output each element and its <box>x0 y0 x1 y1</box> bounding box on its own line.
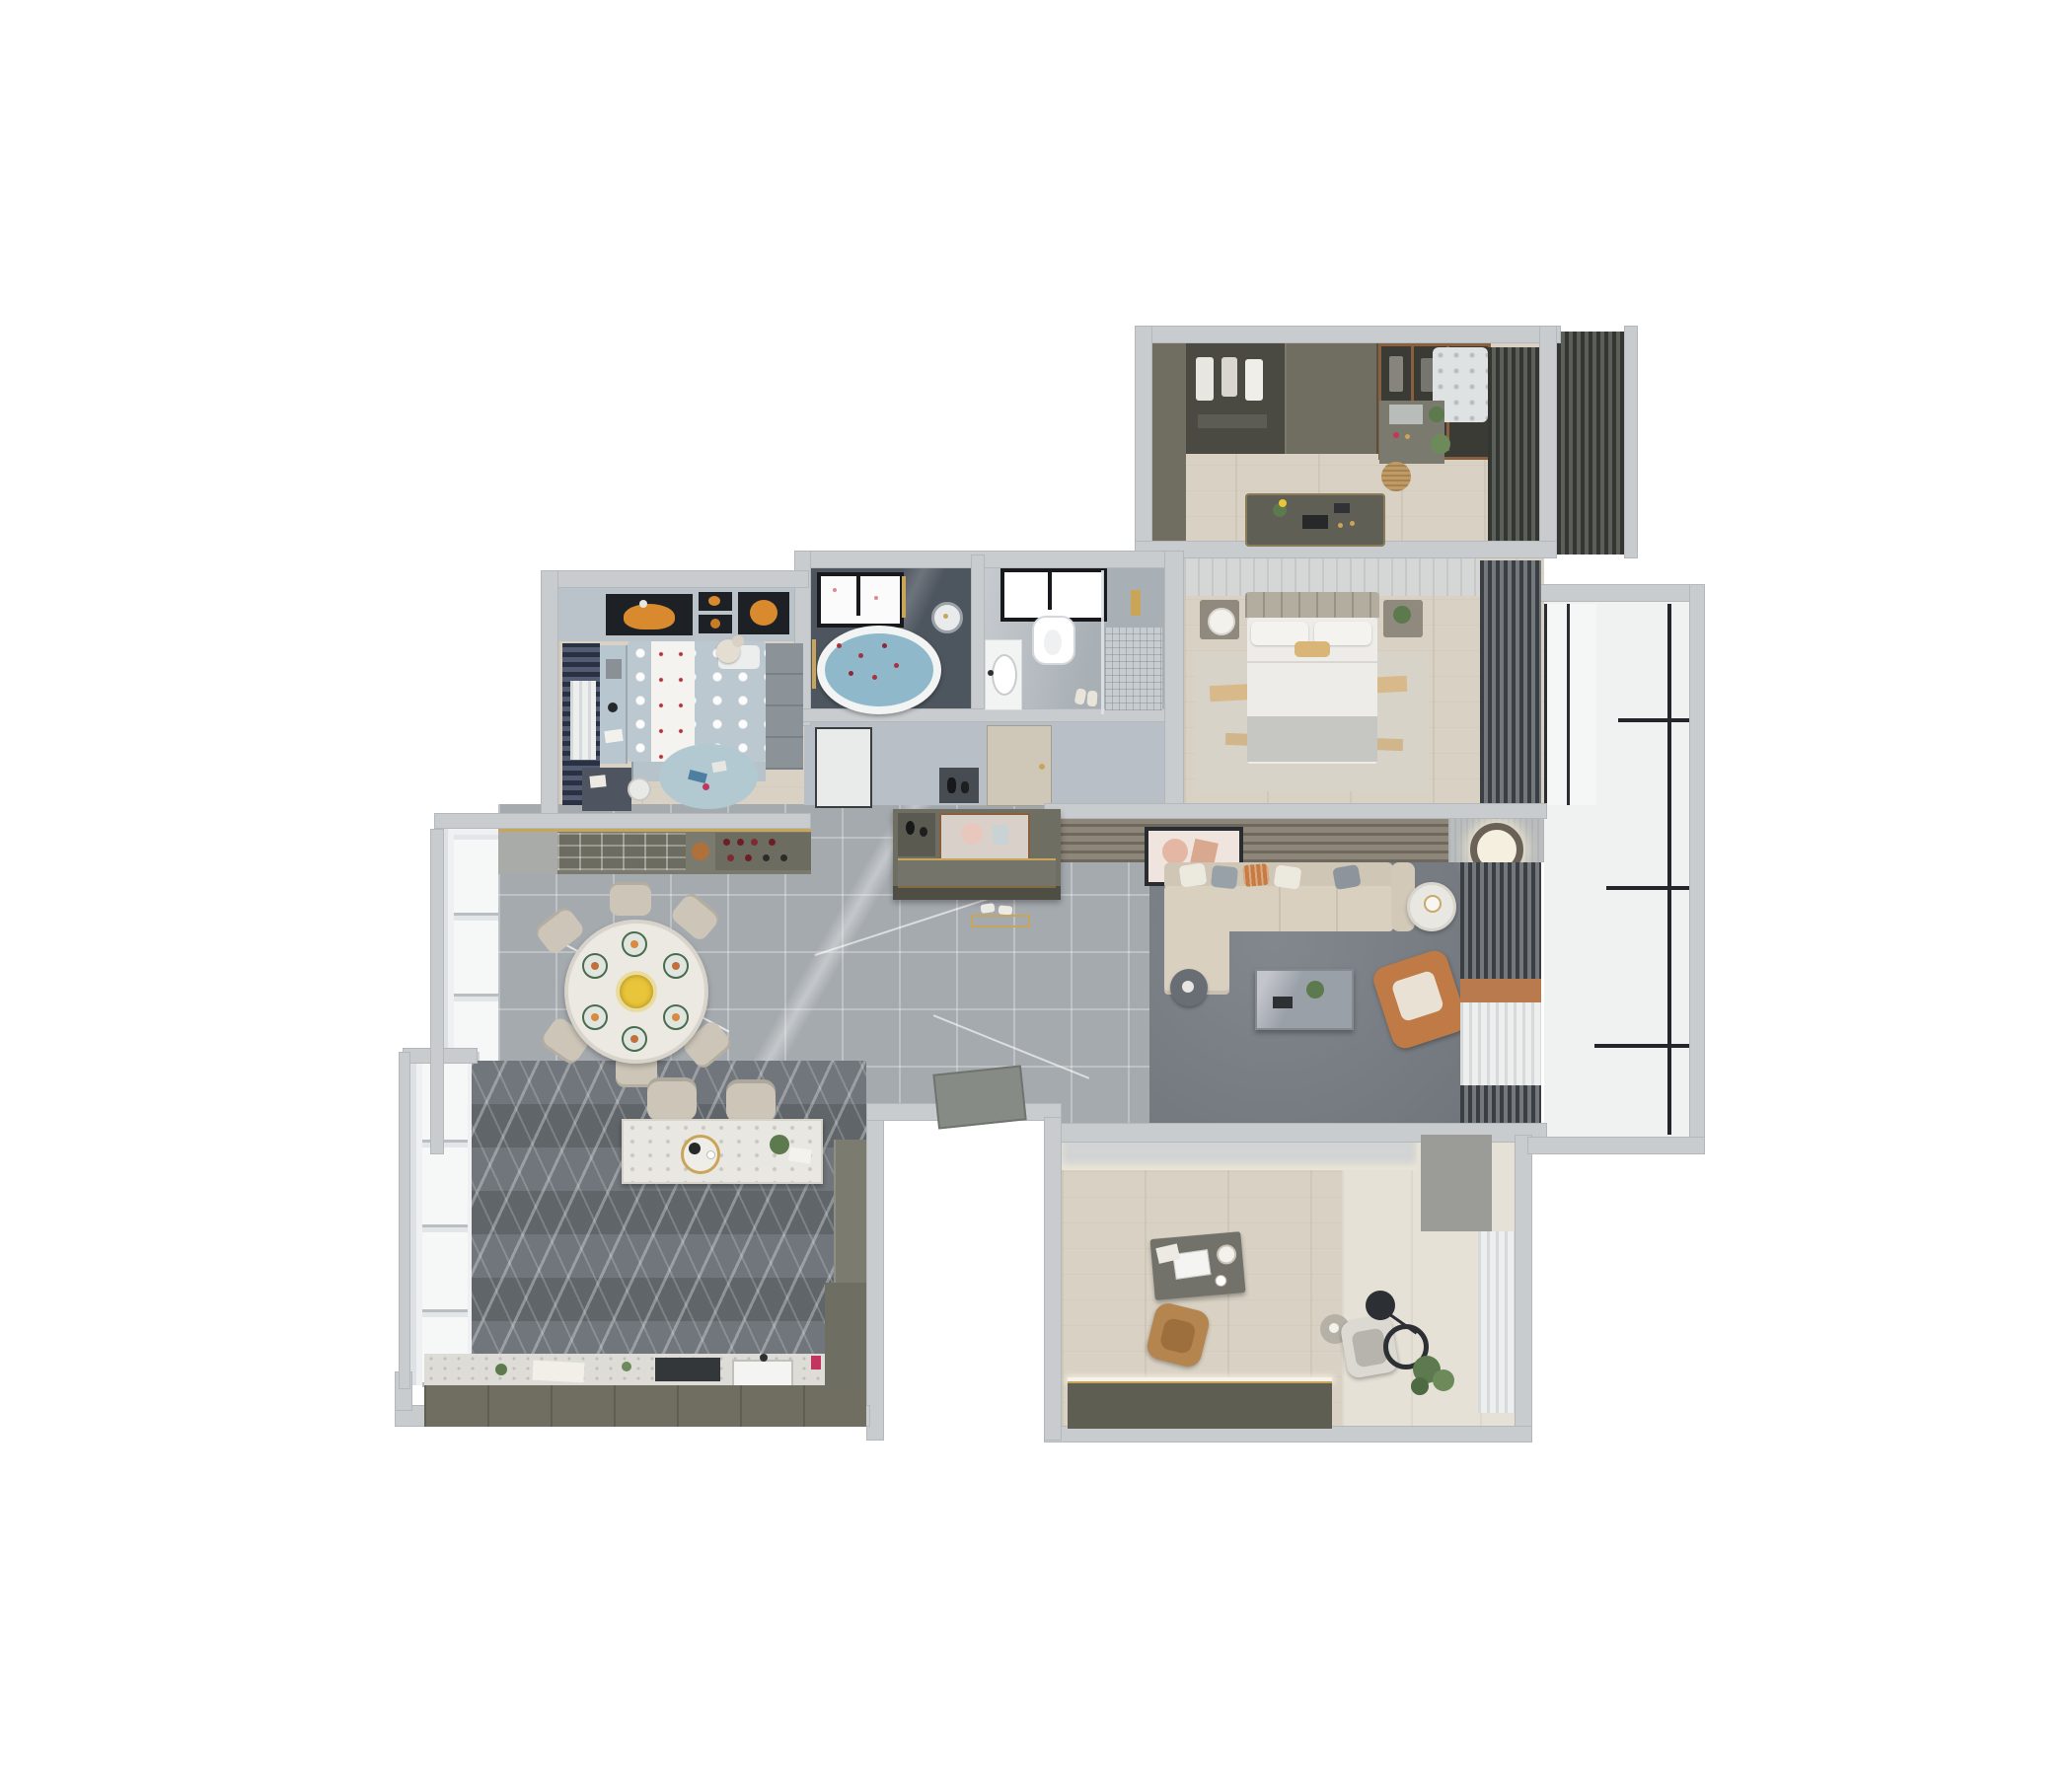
dining-sideboard <box>498 829 811 874</box>
throw-pillow <box>1274 864 1302 889</box>
study-plant <box>1411 1377 1429 1395</box>
closet-curtain <box>1488 347 1539 541</box>
island-plant <box>770 1135 789 1154</box>
sink <box>732 1360 793 1387</box>
bath-window <box>817 572 904 628</box>
kids-blanket <box>651 641 695 762</box>
outer-wall-closet-east-frame <box>1624 326 1638 558</box>
study-plant <box>1433 1369 1454 1391</box>
study-desk <box>1149 1231 1245 1300</box>
shower-room-window <box>1000 568 1107 622</box>
throw-pillow <box>1242 863 1270 887</box>
throw-pillow <box>1332 864 1361 890</box>
flower-centerpiece <box>620 975 653 1008</box>
bath-divider-wall <box>971 555 985 722</box>
accent-pillow <box>1295 641 1330 657</box>
place-setting <box>582 1004 608 1030</box>
bed-headboard <box>1245 592 1379 618</box>
kids-artwork-large <box>606 594 693 635</box>
balcony-window-bar <box>1618 718 1689 722</box>
shower-glass-panel <box>1101 570 1104 714</box>
closet-east-blinds <box>1557 332 1624 555</box>
rain-shower-head <box>931 602 963 633</box>
red-item <box>811 1356 821 1369</box>
balcony-window-mullion <box>1667 604 1671 1135</box>
tv-wood-slat-wall <box>1044 819 1448 862</box>
kids-desk-column <box>600 645 628 764</box>
gold-doormat-strip <box>971 915 1030 927</box>
console-mirror-niche <box>939 813 1030 860</box>
study-curtain-gray <box>1421 1135 1492 1231</box>
throw-pillow <box>1179 862 1208 887</box>
oval-bathtub <box>817 626 941 714</box>
hall-decor-niche <box>939 768 979 803</box>
throw-pillow <box>1211 865 1238 890</box>
bar-chair <box>647 1077 697 1121</box>
wall-hung-toilet <box>1032 616 1075 665</box>
kitchen-stepped-wall-lower <box>825 1283 866 1389</box>
nightstand-left <box>1200 600 1239 639</box>
kids-bed <box>628 641 766 762</box>
floor-lamp-disc <box>1366 1291 1395 1320</box>
vanity-basin <box>985 639 1022 710</box>
balcony-south-wall <box>1527 1137 1705 1154</box>
kitchen-window-frame <box>399 1052 410 1389</box>
study-east-wall <box>1515 1135 1532 1443</box>
kids-artwork-medium <box>738 592 789 634</box>
closet-wardrobe-column <box>1152 343 1186 543</box>
bedroom-headboard-wall <box>1184 558 1480 596</box>
living-curtain-gray-top <box>1460 862 1541 979</box>
kids-artwork-small <box>699 615 732 633</box>
coffee-cup <box>1215 1275 1227 1288</box>
copper-decor <box>692 843 709 860</box>
place-setting <box>622 931 647 957</box>
bathtub-room-door <box>815 727 872 808</box>
shower-rail <box>902 576 906 618</box>
counter-plant <box>622 1362 631 1371</box>
cutting-board <box>533 1361 585 1383</box>
table-plant <box>1306 981 1324 999</box>
outer-wall <box>1539 326 1557 558</box>
outer-wall <box>794 551 1184 568</box>
living-curtain-cognac <box>1460 979 1541 1002</box>
bedroom-west-wall <box>1164 551 1184 819</box>
dining-chair <box>610 882 651 916</box>
entry-console <box>893 809 1061 900</box>
faucet <box>760 1354 768 1362</box>
cooktop <box>655 1358 720 1381</box>
study-curtain-sheer <box>1478 1231 1515 1413</box>
living-curtain-gray-bottom <box>1460 1085 1541 1123</box>
white-side-table <box>1407 882 1456 931</box>
kitchen-cabinet-front <box>424 1385 866 1427</box>
closet-open-wardrobe <box>1186 343 1285 454</box>
entry-notch-outside <box>884 1121 1044 1441</box>
desk-lamp <box>1216 1244 1237 1266</box>
console-shelves <box>898 813 935 856</box>
outer-wall <box>541 570 558 829</box>
bar-chair <box>726 1079 776 1123</box>
floorplan-canvas <box>0 0 2072 1776</box>
glass-shelf-grid <box>557 833 686 870</box>
kitchen-counter-top <box>424 1354 866 1387</box>
bath-south-wall <box>794 708 1169 722</box>
kitchen-floor-windows <box>410 1052 480 1385</box>
slippers <box>1086 691 1097 707</box>
place-setting <box>663 1004 689 1030</box>
shower-mosaic-floor <box>1105 628 1162 710</box>
balcony-east-wall <box>1689 584 1705 1154</box>
kitchen-island <box>622 1119 823 1184</box>
closet-island-dresser <box>1245 493 1385 547</box>
console-drawers <box>898 858 1056 888</box>
kids-south-wall <box>434 813 811 829</box>
bedroom-window-glass <box>1544 604 1596 805</box>
kids-artwork-small <box>699 592 732 611</box>
tv-wall <box>1044 803 1547 819</box>
round-dining-table <box>564 920 708 1064</box>
study-north-band <box>1062 1143 1417 1170</box>
place-setting <box>622 1026 647 1052</box>
bed-body <box>1247 618 1377 764</box>
outer-wall <box>1135 326 1152 558</box>
table-tray <box>1273 997 1293 1008</box>
nightstand-right <box>1383 600 1423 637</box>
closet-vanity <box>1379 401 1444 464</box>
wine-rack <box>715 833 811 870</box>
kids-sheer-curtain <box>570 681 596 760</box>
shower-fixture <box>1131 590 1141 616</box>
rattan-basket <box>1381 462 1411 491</box>
dining-window-frame <box>430 829 444 1154</box>
bed-end-blanket <box>1247 716 1377 762</box>
marble-coffee-table <box>1255 969 1354 1030</box>
closet-door-section <box>1285 343 1378 454</box>
dark-side-table <box>1170 969 1208 1006</box>
outer-wall <box>1135 326 1561 343</box>
teddy-bear <box>716 639 740 663</box>
kids-chair <box>628 777 651 801</box>
balcony-window-bar <box>1606 886 1689 890</box>
kids-wardrobe <box>766 643 803 770</box>
place-setting <box>663 953 689 979</box>
teapot <box>689 1143 701 1154</box>
entry-notch-wall-west <box>866 1117 884 1441</box>
kids-desk <box>582 768 631 811</box>
towel-rail <box>812 639 816 689</box>
entry-notch-wall-east <box>1044 1117 1062 1441</box>
study-low-cabinet <box>1068 1381 1332 1429</box>
balcony-north-wall <box>1539 584 1705 602</box>
outer-wall <box>541 570 809 588</box>
shower-room-door <box>987 725 1052 806</box>
living-curtain-sheer <box>1460 1002 1541 1087</box>
kids-round-rug <box>659 744 758 809</box>
balcony-window-bar <box>1594 1044 1689 1048</box>
bedroom-window-mullion <box>1567 604 1570 805</box>
counter-plant <box>495 1364 507 1375</box>
bedroom-curtains <box>1480 560 1541 803</box>
place-setting <box>582 953 608 979</box>
entry-door-leaf <box>932 1065 1026 1129</box>
